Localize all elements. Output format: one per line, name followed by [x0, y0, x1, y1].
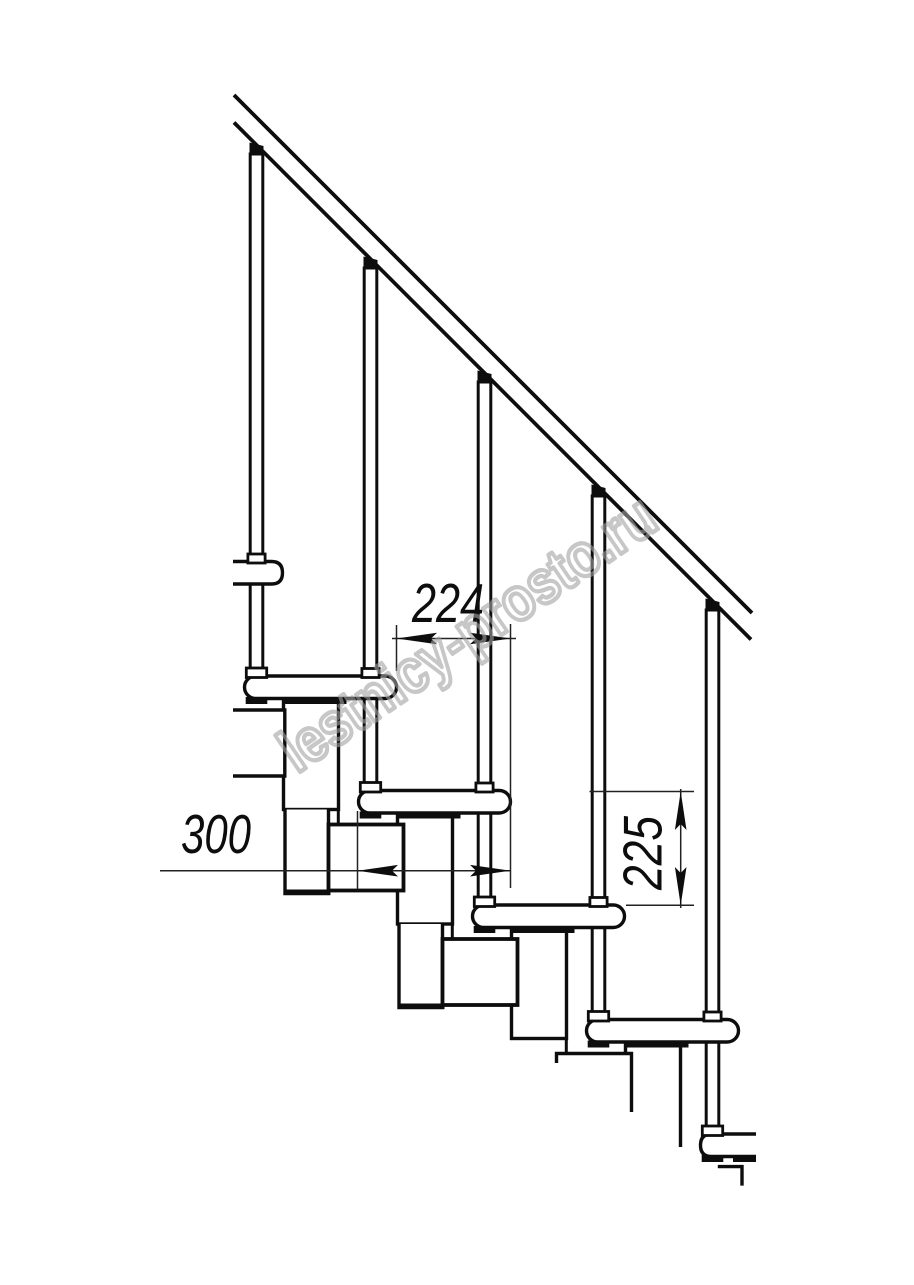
svg-text:300: 300	[181, 803, 251, 865]
svg-text:225: 225	[612, 816, 674, 891]
